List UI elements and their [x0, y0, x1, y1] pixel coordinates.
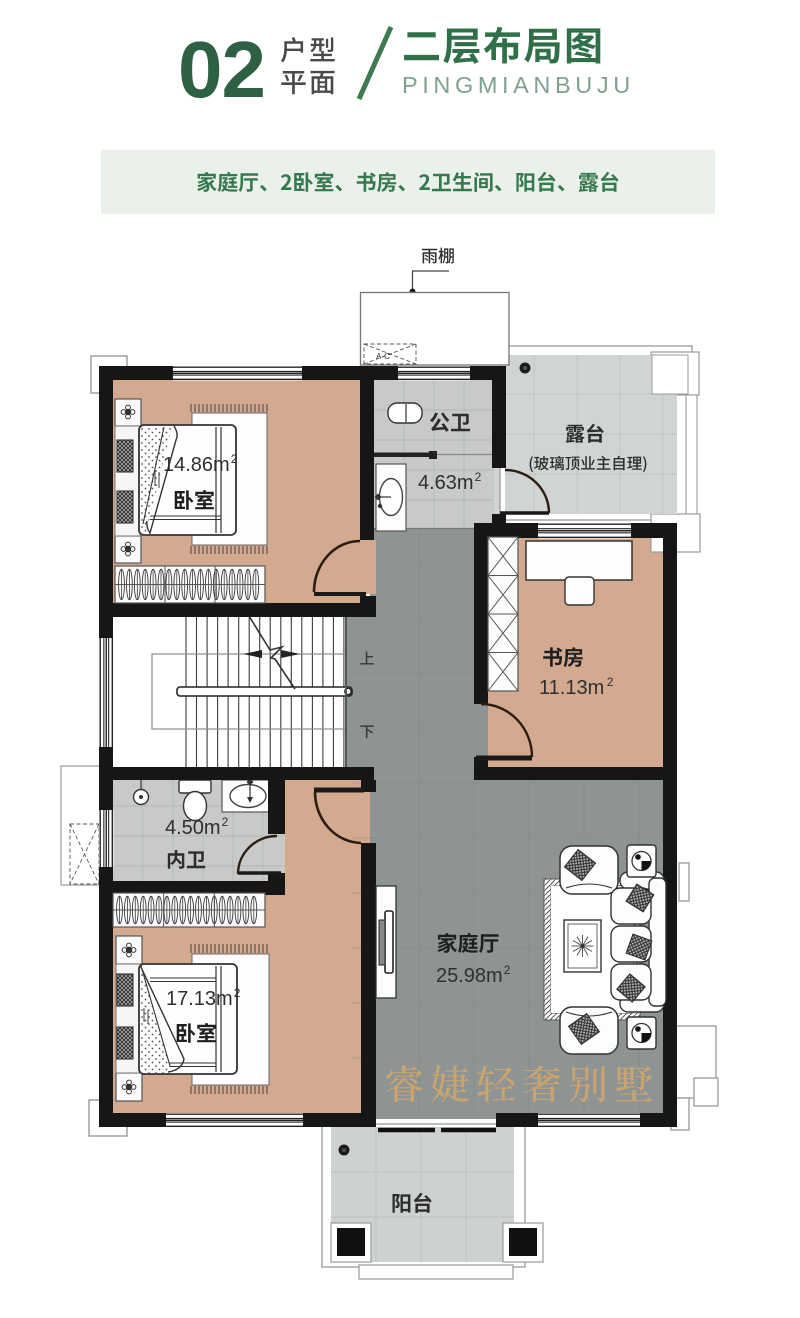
svg-text:2: 2 [607, 675, 614, 689]
svg-text:4.63m: 4.63m [418, 472, 474, 494]
svg-text:14.86m: 14.86m [163, 454, 230, 476]
svg-text:2: 2 [222, 815, 229, 829]
svg-text:2: 2 [234, 986, 241, 1000]
svg-text:4.50m: 4.50m [165, 817, 221, 839]
svg-text:17.13m: 17.13m [166, 988, 233, 1010]
svg-text:25.98m: 25.98m [436, 965, 503, 987]
svg-text:A-C: A-C [376, 352, 390, 361]
svg-text:2: 2 [504, 963, 511, 977]
svg-text:11.13m: 11.13m [539, 677, 604, 699]
svg-text:PINGMIANBUJU: PINGMIANBUJU [402, 72, 635, 98]
svg-text:02: 02 [178, 25, 265, 114]
svg-text:2: 2 [475, 470, 482, 484]
svg-text:2: 2 [231, 452, 238, 466]
